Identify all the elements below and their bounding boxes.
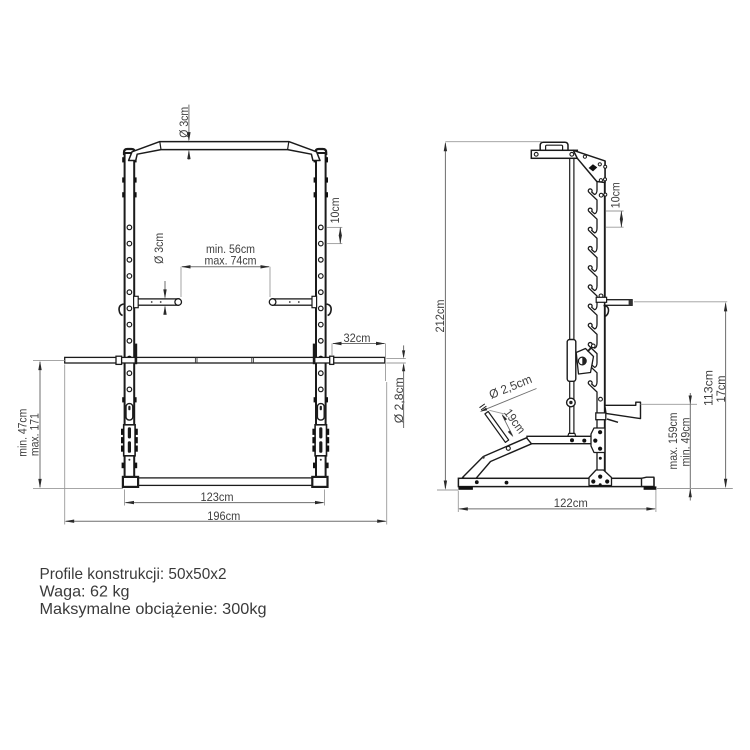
svg-text:17cm: 17cm bbox=[714, 376, 728, 403]
svg-text:196cm: 196cm bbox=[207, 509, 240, 523]
svg-text:123cm: 123cm bbox=[201, 490, 234, 504]
svg-text:Maksymalne obciążenie: 300kg: Maksymalne obciążenie: 300kg bbox=[40, 601, 267, 618]
svg-text:Ø 3cm: Ø 3cm bbox=[152, 233, 166, 264]
svg-text:Profile konstrukcji: 50x50x2: Profile konstrukcji: 50x50x2 bbox=[40, 566, 227, 583]
svg-text:Ø 2,8cm: Ø 2,8cm bbox=[392, 377, 406, 423]
svg-text:max. 171: max. 171 bbox=[27, 413, 41, 456]
svg-text:32cm: 32cm bbox=[344, 331, 371, 345]
svg-text:10cm: 10cm bbox=[328, 197, 342, 223]
svg-text:Waga: 62 kg: Waga: 62 kg bbox=[40, 584, 130, 601]
svg-text:122cm: 122cm bbox=[554, 496, 588, 510]
svg-text:max. 74cm: max. 74cm bbox=[205, 254, 257, 268]
svg-text:min. 49cm: min. 49cm bbox=[678, 418, 692, 467]
svg-text:212cm: 212cm bbox=[433, 300, 447, 333]
svg-text:10cm: 10cm bbox=[609, 182, 623, 208]
